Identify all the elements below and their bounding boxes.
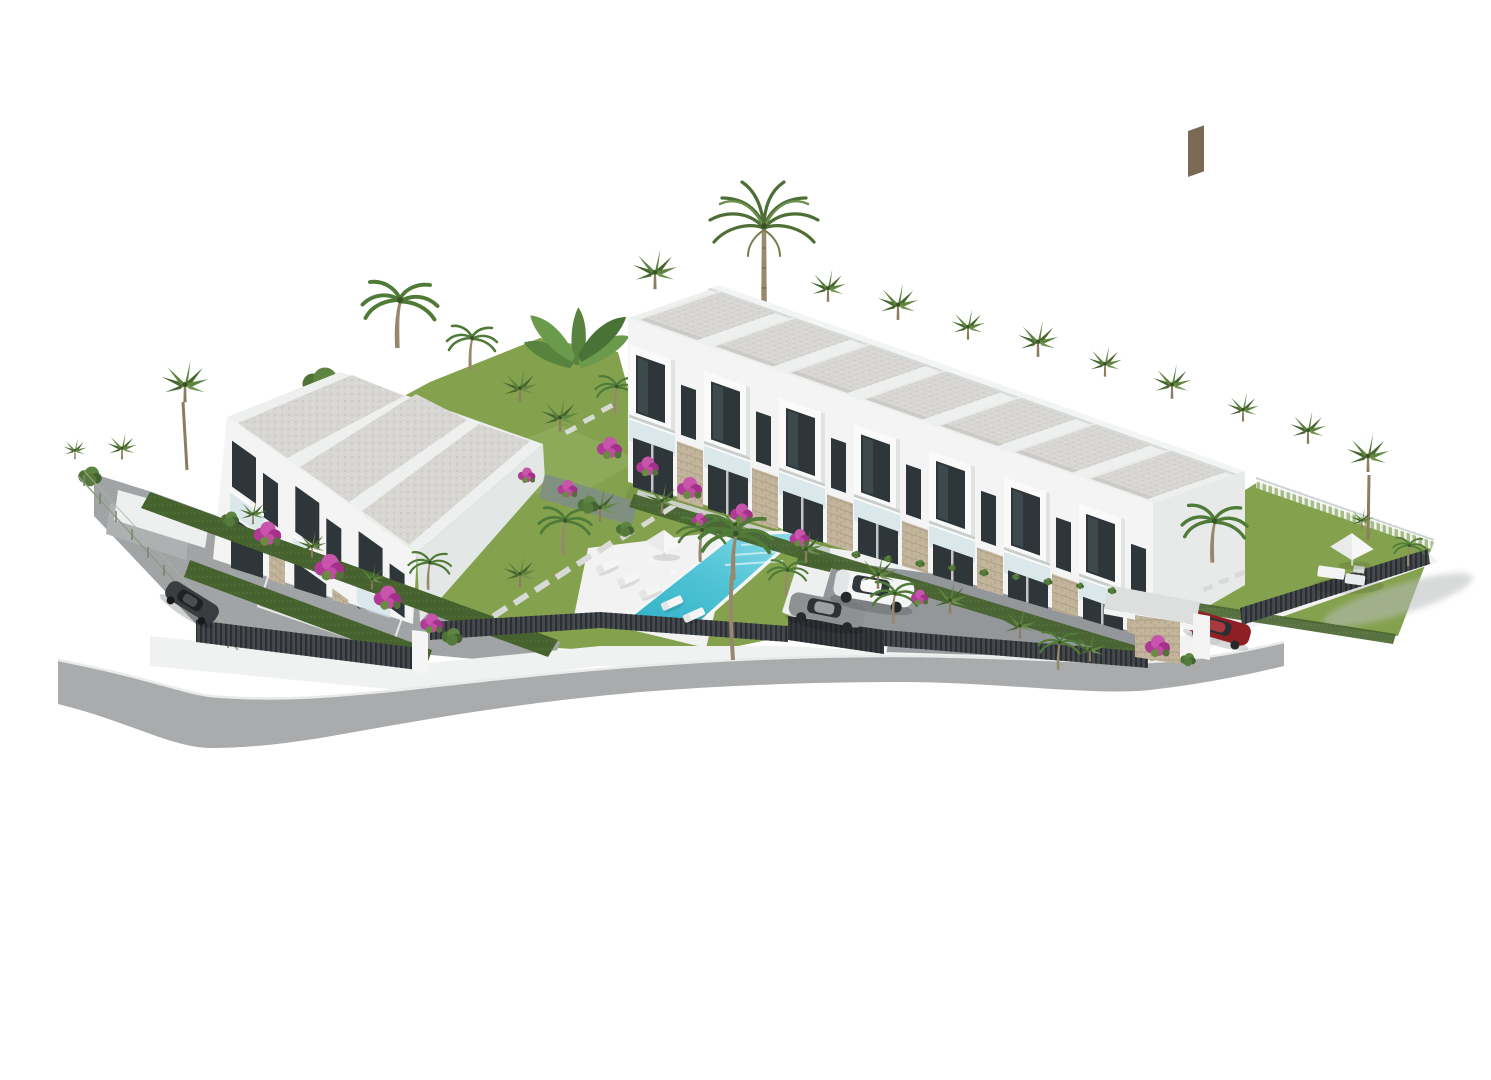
- architectural-render-canvas: [0, 0, 1491, 1080]
- carport-pillar: [1193, 613, 1210, 660]
- trees-behind-left-block: [63, 360, 208, 486]
- fence-pillar: [412, 630, 428, 674]
- row-end-door: [1188, 125, 1204, 177]
